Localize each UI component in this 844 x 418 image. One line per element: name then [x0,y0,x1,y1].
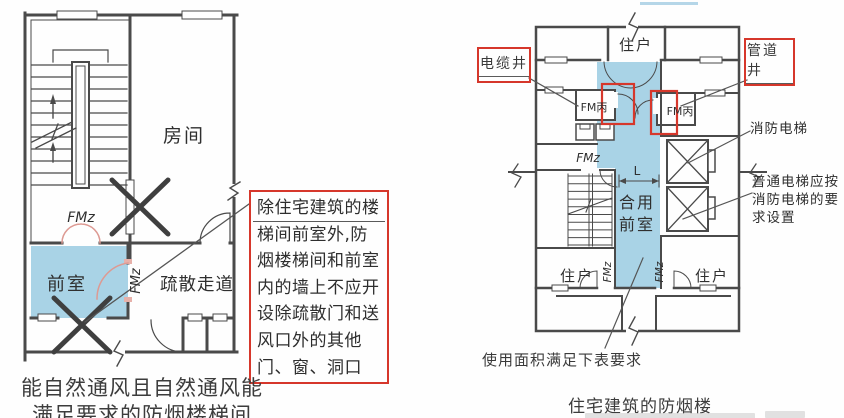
small-shaft [596,124,614,140]
staircase [32,50,127,188]
left-caption-line1: 能自然通风且自然通风能 [10,372,274,402]
top-blue-mark [640,2,698,5]
annotation-line: 梯间前室外,防 [257,222,382,249]
up-arrow [50,142,56,151]
up-arrow [50,94,56,104]
window [188,314,202,321]
resident-bottom-right-label: 住户 [695,267,729,285]
stair-break-line [568,198,612,214]
wall-break [512,164,521,187]
window [552,285,568,291]
pipe-shaft-label: 管道井 [746,40,793,84]
front-room-label: 前室 [47,274,87,295]
window [700,285,716,291]
fmz-top-label: FMz [67,210,95,226]
pipe-shaft-callout: 管道井 [744,38,795,86]
shared-front-room-line2: 前室 [619,215,655,234]
stair-handrail [72,62,89,188]
window [213,314,227,321]
cable-shaft-label: 电缆井 [479,53,529,77]
staircase-right [568,174,612,246]
resident-top-label: 住户 [619,36,653,54]
resident-bottom-left-label: 住户 [560,267,594,285]
left-floor-plan [25,11,249,366]
cropped-text-fragment [765,411,805,418]
annotation-line: 烟楼梯间和前室 [257,248,382,275]
annotation-line: 风口外的其他 [257,328,382,355]
cable-shaft-callout: 电缆井 [477,47,531,83]
x-mark-upper [112,180,168,234]
small-shaft [576,124,594,140]
annotation-underline [253,221,385,222]
window [38,314,56,321]
corridor-exit-door [151,320,183,352]
window [545,57,567,63]
bottom-fmz-left-label: FMz [602,261,614,282]
floor-plans-drawing: 房间 前室 疏散走道 FMz FMz [0,0,844,418]
fmz-side-label: FMz [129,267,144,294]
stair-door-fmz-label: FMz [576,151,600,165]
window [57,11,97,19]
fm-bing-right-label: FM丙 [667,105,694,118]
annotation-box: 除住宅建筑的楼 梯间前室外,防 烟楼梯间和前室 内的墙上不应开 设除疏散门和送 … [249,190,389,384]
stair-break-line [32,122,76,148]
window [182,11,222,19]
dimension-l-label: L [634,164,641,178]
room-label: 房间 [163,125,205,147]
elevator-note-line2: 消防电梯的要 [752,192,839,208]
bottom-fmz-right-label: FMz [654,261,666,282]
elevator-note-line1: 普通电梯应按 [752,173,839,190]
elevator-note-line3: 求设置 [752,210,796,226]
right-floor-plan [509,13,766,348]
annotation-line: 除住宅建筑的楼 [257,195,382,222]
corridor-label: 疏散走道 [160,275,234,295]
elevator-door [708,150,715,172]
annotation-line: 内的墙上不应开 [257,275,382,302]
annotation-line: 设除疏散门和送 [257,301,382,328]
annotation-line: 门、窗、洞口 [257,355,382,382]
forbidden-opening [126,180,134,234]
fmz-double-door [62,224,100,243]
area-note: 使用面积满足下表要求 [482,349,657,370]
fm-bing-left-label: FM丙 [581,101,608,114]
window [700,57,722,63]
fire-elevator-label: 消防电梯 [750,121,808,137]
cropped-text-fragment [585,413,755,418]
diagram-canvas: 房间 前室 疏散走道 FMz FMz [0,0,844,418]
left-caption-line2: 满足要求的防烟楼梯间 [10,399,274,418]
shared-front-room-line1: 合用 [619,193,655,212]
